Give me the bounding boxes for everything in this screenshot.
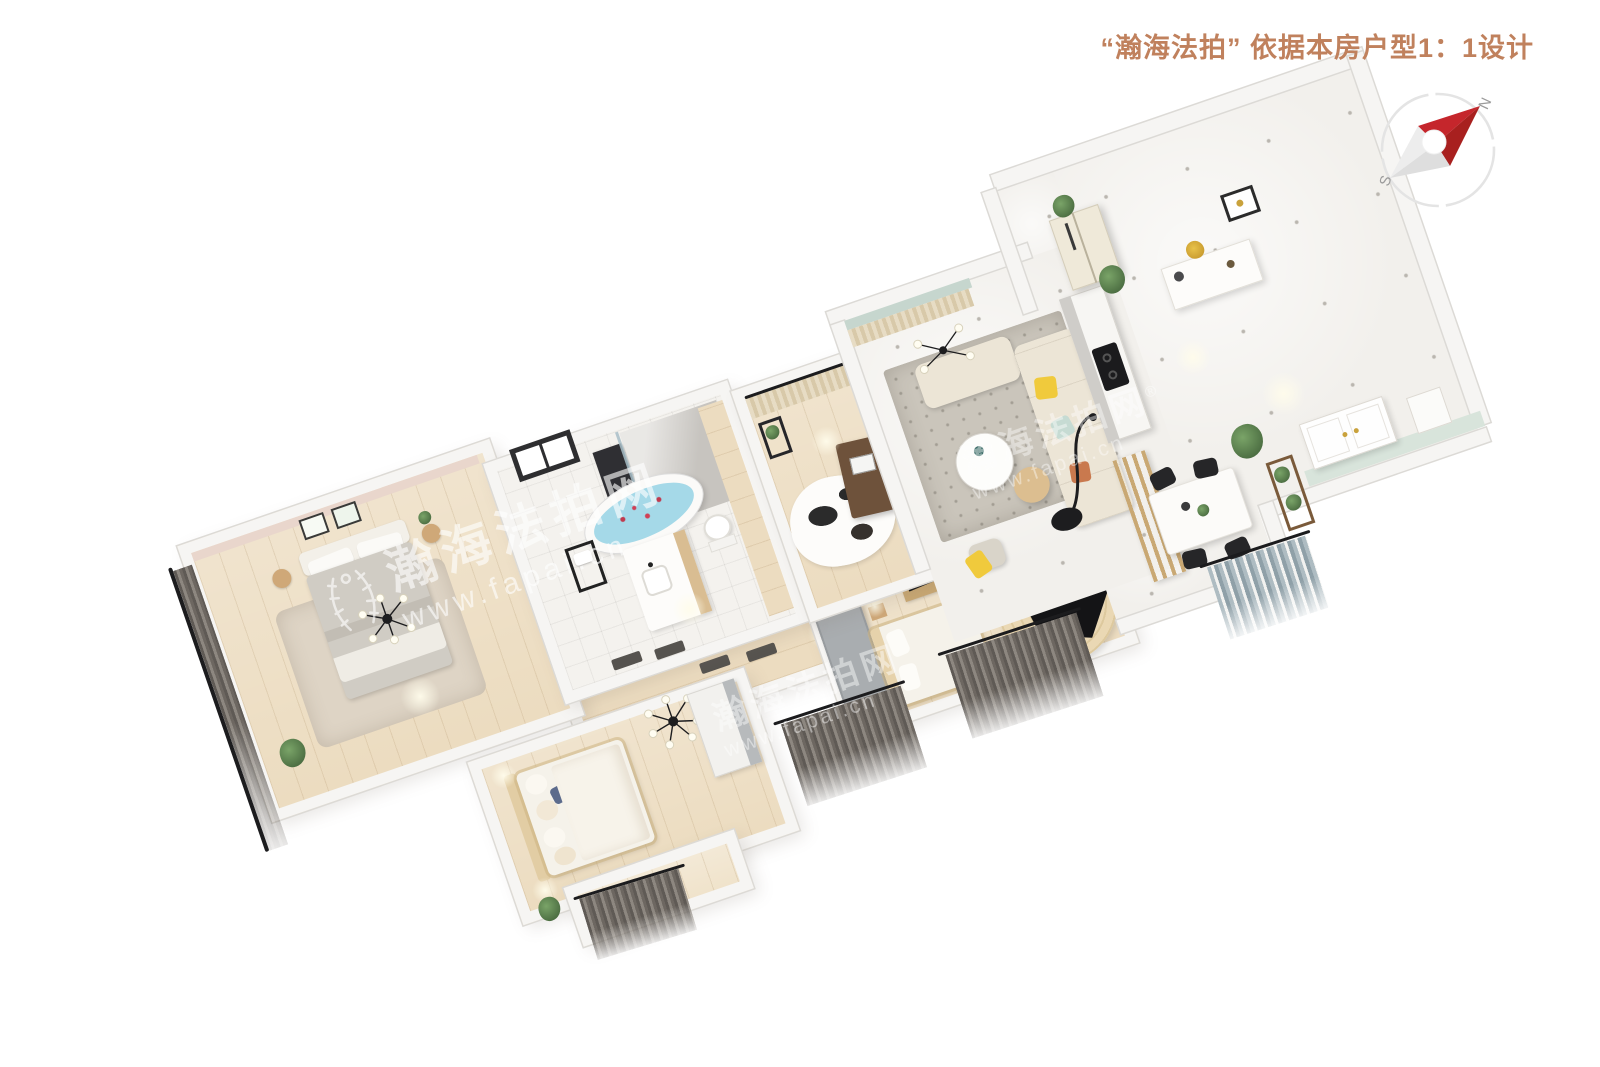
- door-mat: [699, 654, 731, 674]
- compass: N S: [1374, 84, 1504, 214]
- curtain-panel: [781, 685, 927, 806]
- pillow-yellow: [1034, 376, 1059, 401]
- door-mat: [611, 651, 643, 671]
- page-title: “瀚海法拍” 依据本房户型1：1设计: [1100, 26, 1534, 65]
- door-mat: [746, 642, 778, 662]
- nightstand: [419, 521, 443, 545]
- nightstand: [270, 566, 294, 590]
- door-mat: [654, 640, 686, 660]
- potted-plant: [276, 735, 310, 770]
- compass-hub: [1422, 130, 1446, 154]
